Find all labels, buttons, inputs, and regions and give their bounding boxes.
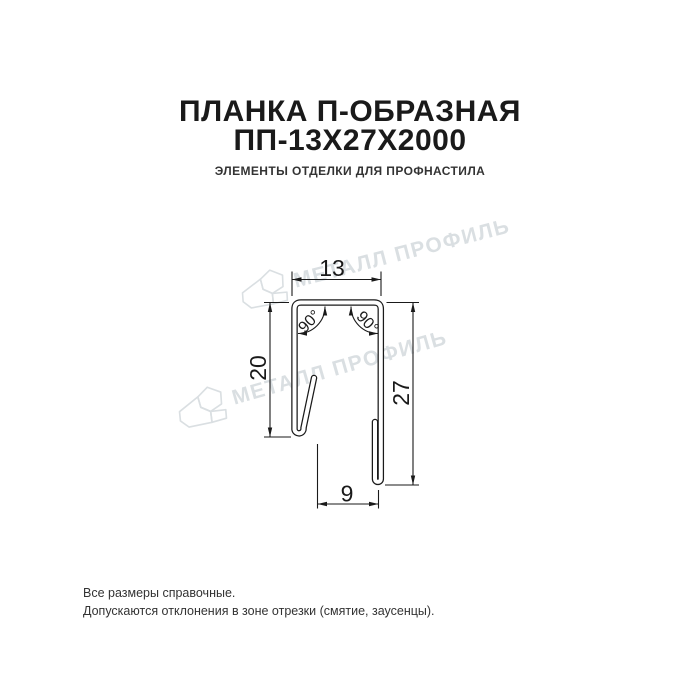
angle-label-left: 90° [295,307,324,336]
dim-label-13: 13 [319,255,345,281]
arrow-left-icon [318,502,328,506]
arrow-right-icon [369,502,379,506]
dimension-top-width: 13 [292,255,381,296]
dimension-bottom-width: 9 [318,444,379,509]
angle-left-90: 90° [295,307,327,337]
arrow-up-icon [349,307,353,316]
page: МЕТАЛЛ ПРОФИЛЬ МЕТАЛЛ ПРОФИЛЬ ПЛАНКА П-О… [0,0,700,700]
footer-notes: Все размеры справочные. Допускаются откл… [83,584,435,620]
dim-label-27: 27 [388,380,414,406]
footer-note-line1: Все размеры справочные. [83,584,435,602]
dimension-left-height: 20 [245,303,291,438]
dimension-right-height: 27 [385,303,419,486]
angle-right-90: 90° [349,307,382,338]
arrow-up-icon [411,303,415,313]
arrow-down-icon [411,476,415,486]
arrow-right-icon [372,277,382,281]
dim-label-20: 20 [245,355,271,381]
dim-label-9: 9 [341,481,354,507]
arrow-up-icon [323,307,327,316]
arrow-down-icon [268,428,272,438]
footer-note-line2: Допускаются отклонения в зоне отрезки (с… [83,602,435,620]
arrow-left-icon [292,277,302,281]
arrow-up-icon [268,303,272,313]
